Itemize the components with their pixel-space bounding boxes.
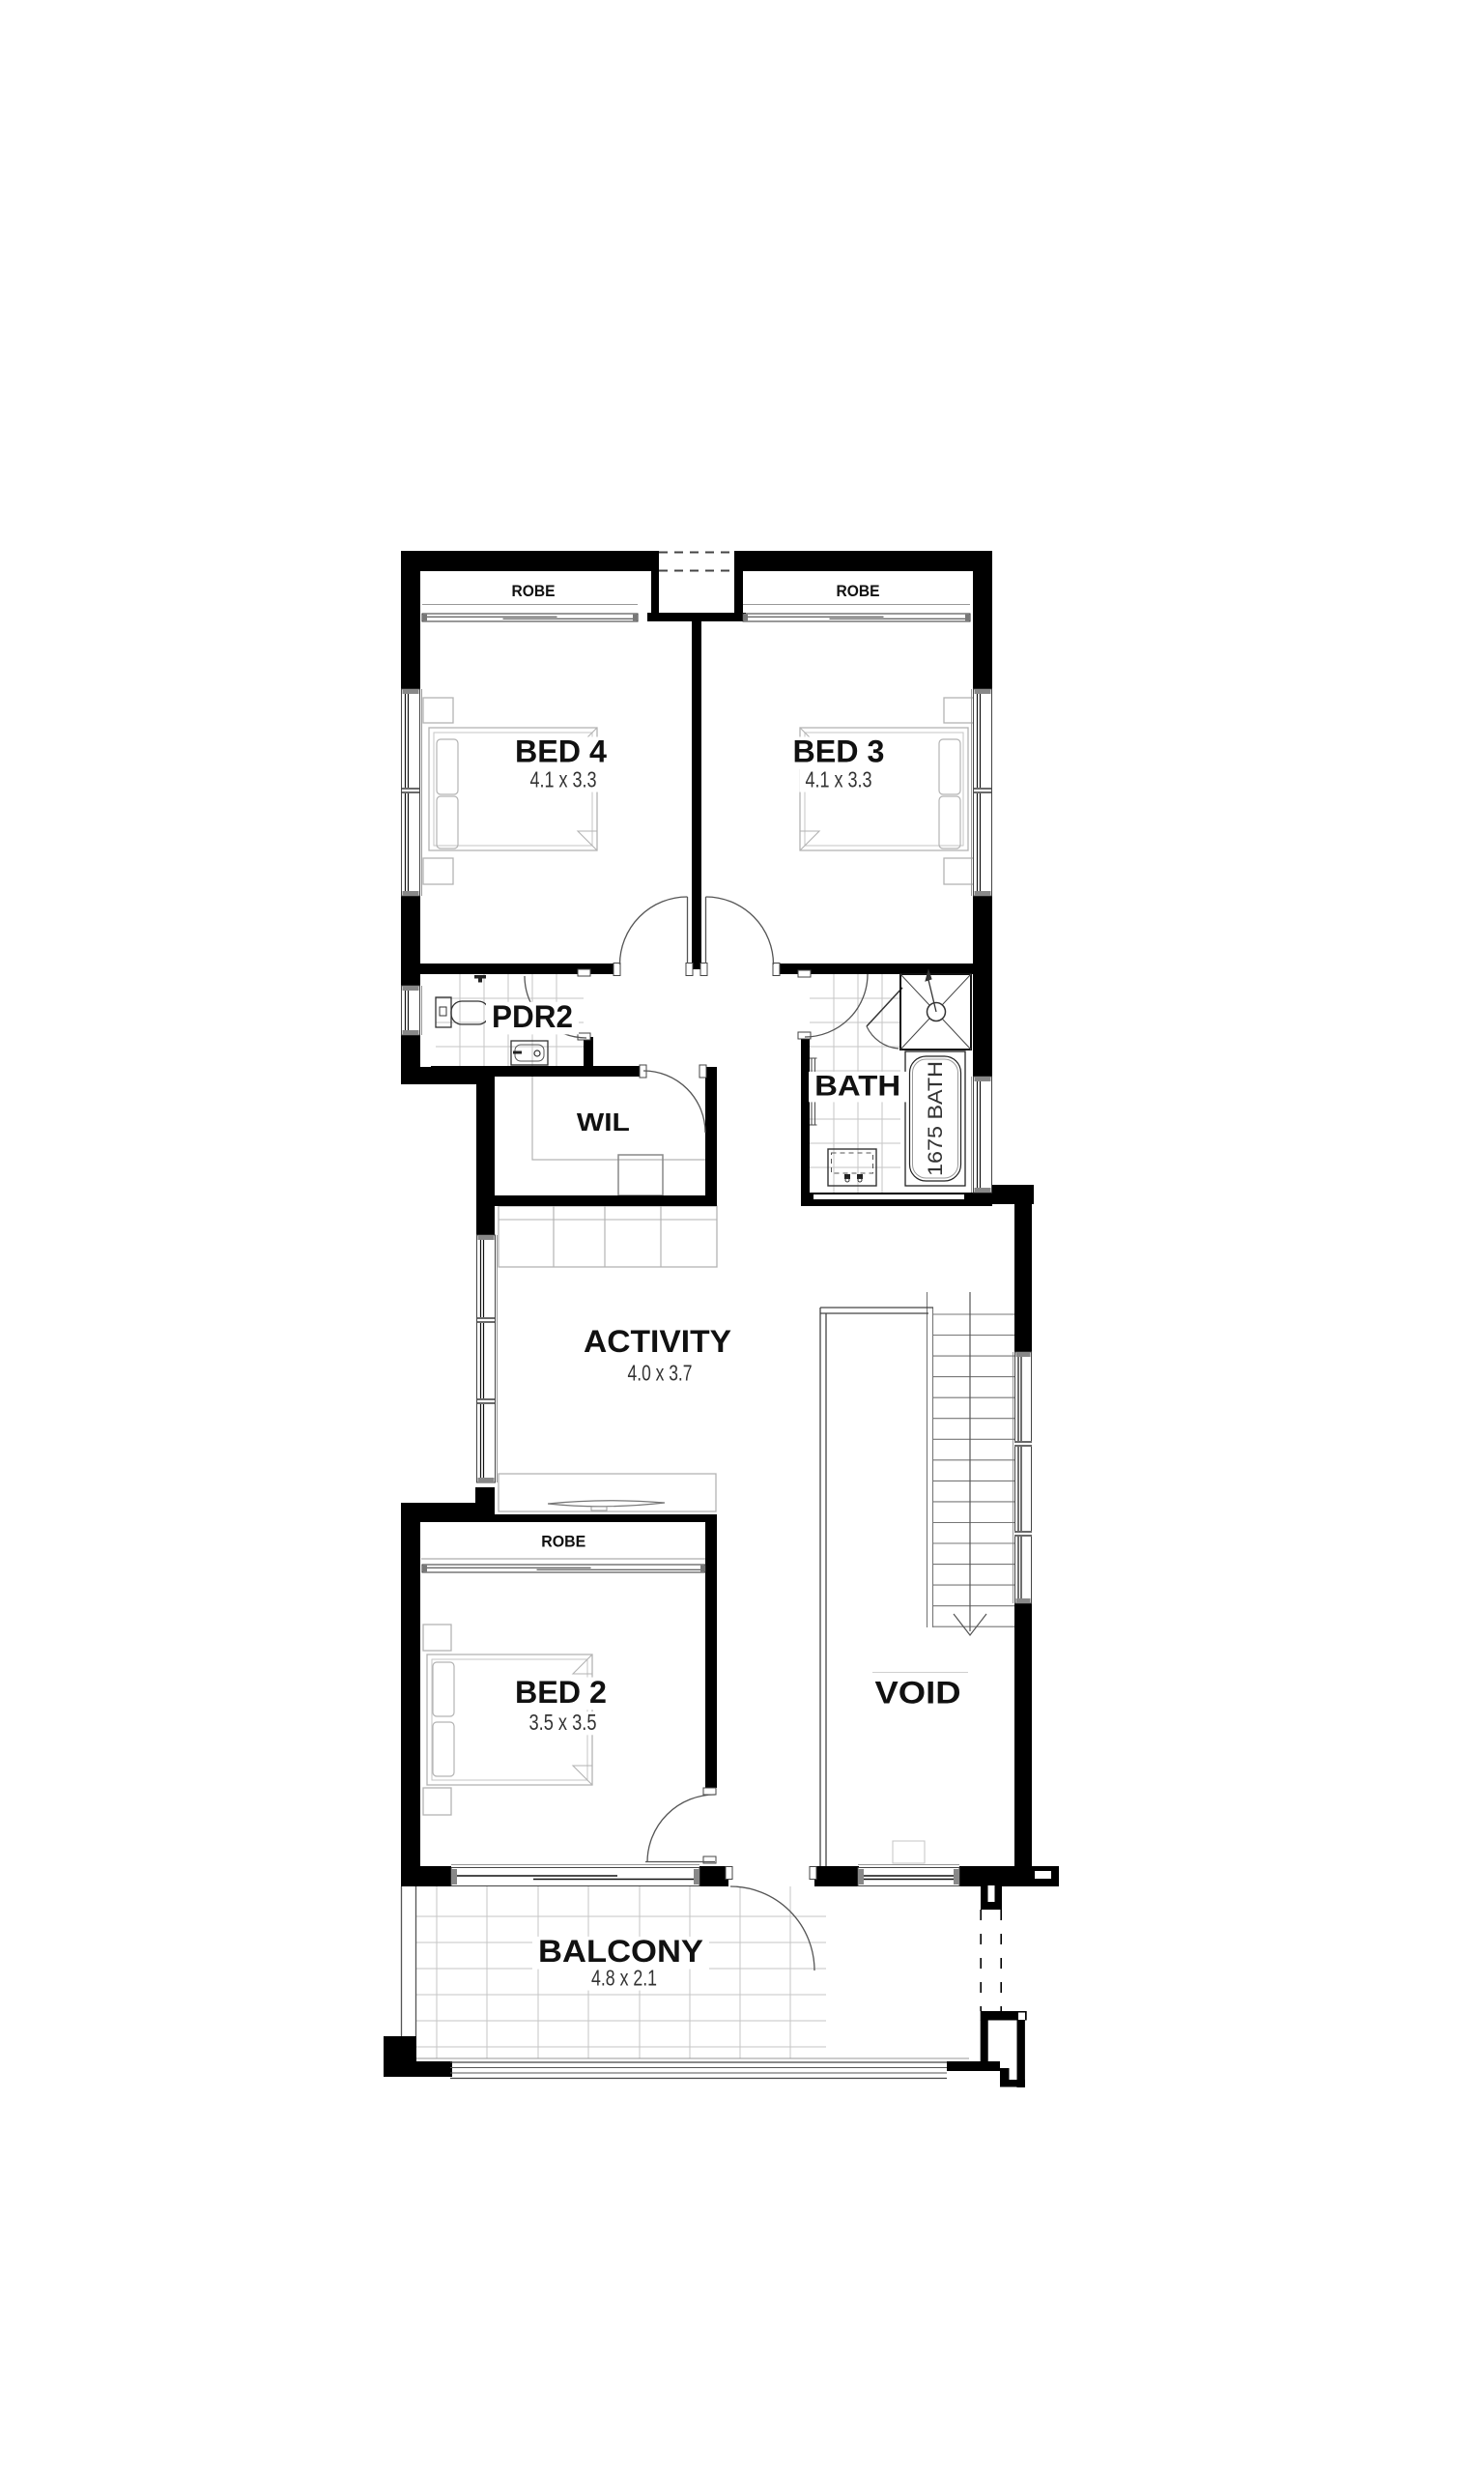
- svg-text:ACTIVITY: ACTIVITY: [584, 1324, 731, 1359]
- svg-text:BED 2: BED 2: [515, 1675, 607, 1710]
- svg-text:4.0 x 3.7: 4.0 x 3.7: [628, 1360, 693, 1385]
- svg-text:4.1 x 3.3: 4.1 x 3.3: [530, 766, 597, 791]
- svg-text:BATH: BATH: [814, 1071, 900, 1103]
- svg-text:3.5 x 3.5: 3.5 x 3.5: [529, 1710, 597, 1735]
- svg-text:ROBE: ROBE: [541, 1534, 585, 1551]
- svg-text:WIL: WIL: [577, 1108, 630, 1136]
- svg-text:4.8 x 2.1: 4.8 x 2.1: [591, 1965, 657, 1990]
- svg-text:PDR2: PDR2: [492, 999, 573, 1034]
- svg-text:BALCONY: BALCONY: [538, 1934, 703, 1969]
- svg-text:ROBE: ROBE: [512, 583, 556, 600]
- svg-text:ROBE: ROBE: [837, 583, 880, 600]
- svg-text:4.1 x 3.3: 4.1 x 3.3: [806, 766, 872, 791]
- svg-text:1675 BATH: 1675 BATH: [925, 1061, 947, 1176]
- svg-text:BED 4: BED 4: [515, 734, 607, 769]
- svg-text:BED 3: BED 3: [793, 734, 885, 769]
- svg-text:VOID: VOID: [875, 1676, 961, 1711]
